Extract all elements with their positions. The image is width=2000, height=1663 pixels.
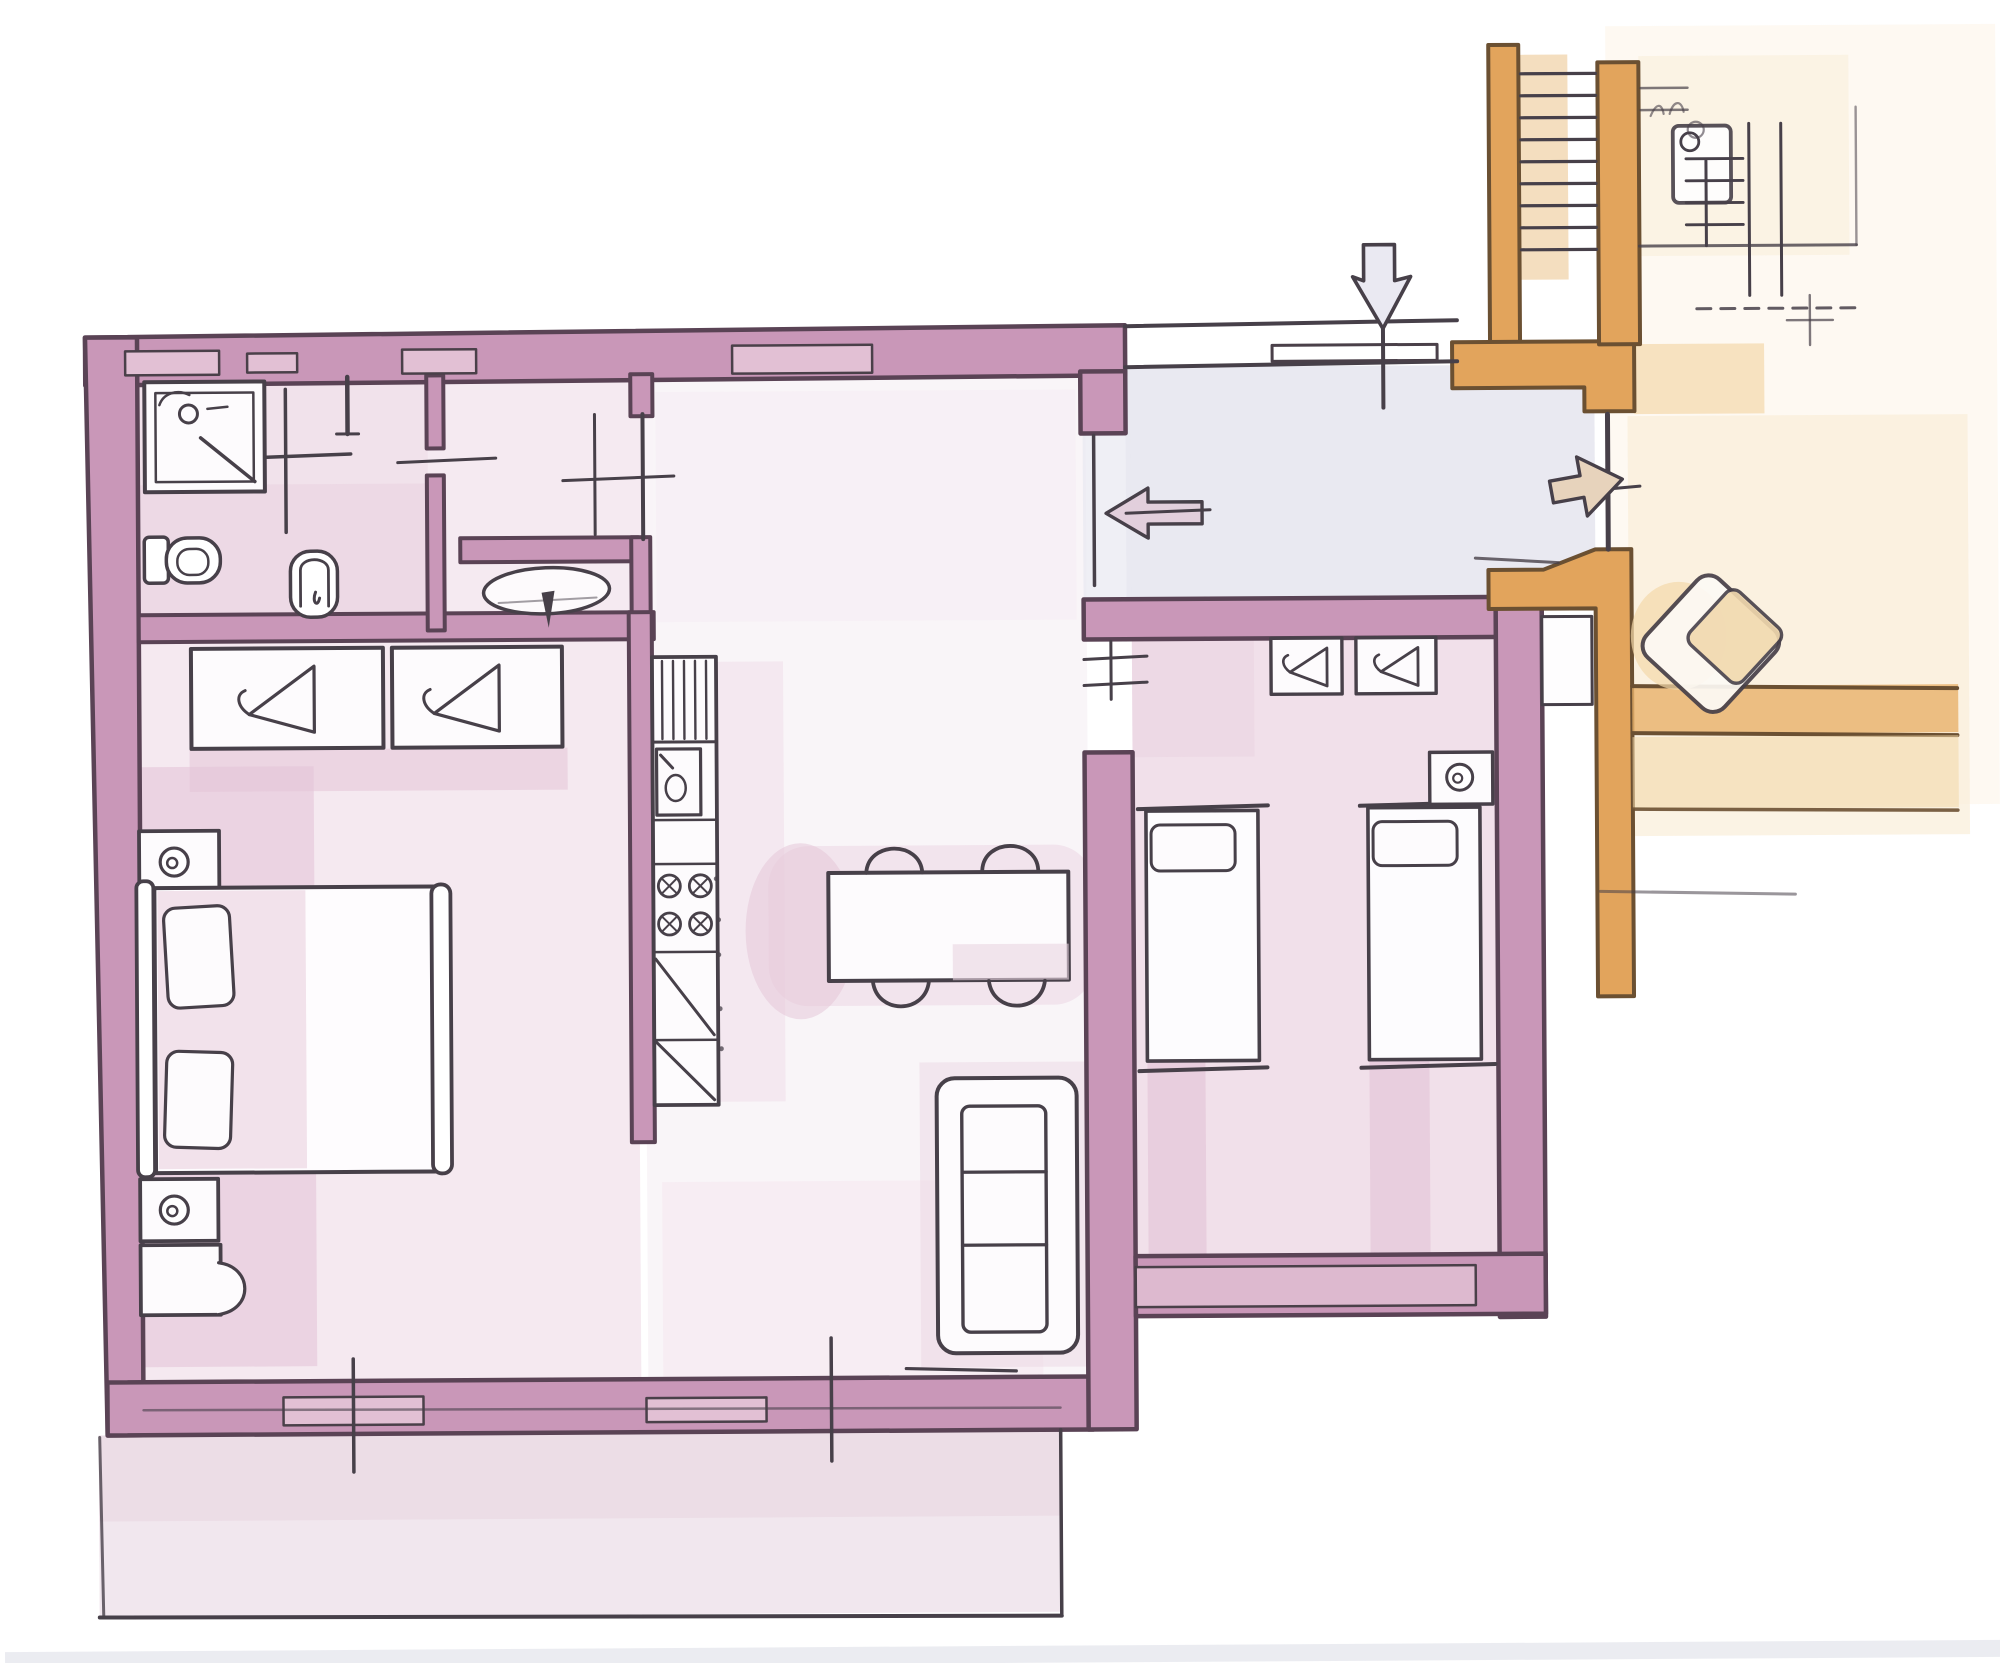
sofa-outline [937,1078,1079,1354]
wall-living-bedroom2 [1085,752,1137,1429]
living-balcony-door-axis [831,1338,832,1461]
bedroom2-wash-door [1132,638,1255,757]
wall-corridor-east-stub [630,374,652,416]
bedroom2-lamp [1447,764,1473,790]
window-top-3 [402,349,476,373]
sofa-cushion-line-2 [963,1245,1047,1246]
hall-window-frame [1272,344,1437,361]
wall-corridor-west-upper [426,375,443,448]
floor-plan-svg [0,0,2000,1663]
bedroom2-wardrobe-right [1356,637,1436,693]
bedroom2-niche [1542,616,1593,704]
bedroom2-wardrobe-left [1271,638,1342,694]
floor-plan: Hand-drawn watercolor apartment floor pl… [0,0,2000,1663]
bathroom-door-swing-v [285,389,286,532]
stairwell-wash-top [1638,55,1849,256]
wall-bottom [107,1376,1093,1435]
bedroom-balcony-door-axis [353,1359,354,1472]
wall-bedroom2-east [1496,597,1546,1317]
bed-footboard [431,884,452,1173]
wall-tubroom-east [631,537,650,615]
toilet-bowl [166,538,220,583]
dresser [141,1245,221,1315]
bed-headboard [136,881,155,1177]
wall-bedroom2-north [1084,597,1542,640]
stair-edge-v [1856,107,1857,245]
kitchen-knob-2 [716,917,721,922]
floor-plan-drawing [0,24,2000,1663]
kitchen-knob-5 [719,1046,724,1051]
landing-band-2 [1632,735,1958,809]
kitchen-knob-1 [714,876,719,881]
wardrobe-right [392,647,563,748]
stairwell-wall-east [1597,62,1640,344]
image-bottom-strip [5,1640,2000,1663]
wall-top-pillar [1080,371,1125,433]
sofa-cushion-line-1 [962,1172,1046,1173]
corridor-door2-leaf [594,414,595,534]
lamp-1 [160,848,188,876]
window-top-1 [125,351,219,376]
wardrobe-left [191,648,384,749]
wall-hall-north-outer [1125,320,1457,326]
upper-band-wash-right [1634,343,1764,414]
balcony-wash-light [99,1516,1062,1618]
dining-table-shade [953,944,1069,981]
wall-top [85,325,1125,385]
lamp-2 [160,1196,188,1224]
bed2-1-pillow [1151,825,1235,872]
window-bedroom2-south [1136,1265,1476,1307]
entrance-arrow [1352,244,1411,328]
bed-pillow-2 [164,1051,233,1149]
kitchen-knob-3 [716,952,721,957]
stairwell-wall-west [1488,45,1520,347]
stair-rail-1 [1749,123,1750,295]
balcony-edge-right [1061,1430,1062,1614]
window-top-2 [247,353,297,372]
living-wash-top [655,390,1076,623]
hall-floor [1125,364,1595,599]
wall-tubroom-north [460,537,638,562]
wall-bathroom-south [139,612,654,642]
window-top-living [732,345,872,374]
bed-pillow-1 [163,905,235,1009]
landing-band-1 [1632,684,1958,734]
kitchen-knob-4 [718,1006,723,1011]
bed2-2-pillow [1373,821,1457,866]
master-bedroom-wash-under-wardrobe [189,748,567,792]
hall-living-door-leaf [1094,435,1095,585]
stair-rail-2 [1781,123,1782,295]
stair-flight-wash [1519,55,1568,280]
wall-corridor-west-lower [427,475,445,630]
